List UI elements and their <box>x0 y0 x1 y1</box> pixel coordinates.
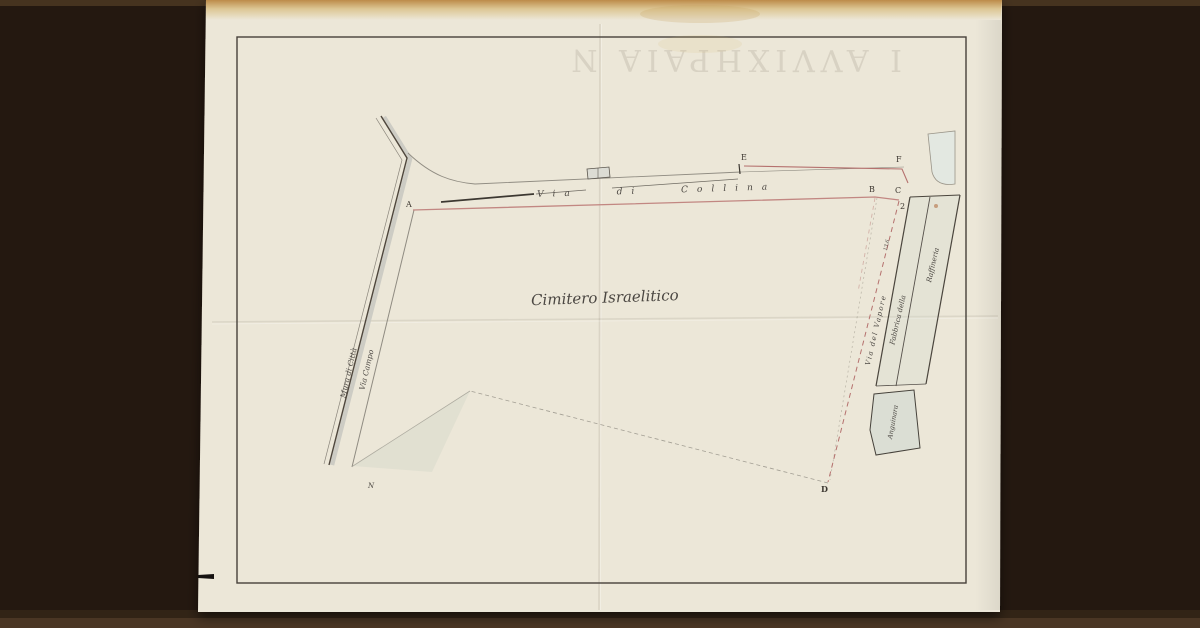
point-a: A <box>405 200 412 209</box>
paper-top-edge <box>206 0 1002 20</box>
point-c2: 2 <box>900 202 905 211</box>
point-e: E <box>741 153 747 162</box>
photographed-plan-scan: I AVVIXHPAIA N <box>0 0 1200 628</box>
plan-canvas: I AVVIXHPAIA N <box>0 0 1200 628</box>
point-b: B <box>869 185 875 194</box>
stain-dot <box>934 204 938 208</box>
point-f: F <box>896 155 902 164</box>
north-mark: N <box>367 482 375 490</box>
point-d: D <box>821 484 828 494</box>
gate-block <box>587 167 610 179</box>
point-c: C <box>895 186 901 195</box>
